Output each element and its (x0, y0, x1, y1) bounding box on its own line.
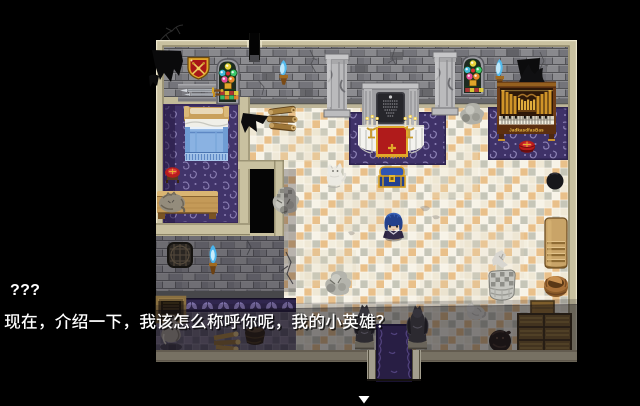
svg-text:???: ??? (10, 282, 40, 299)
svg-text:JadkasdfasBas: JadkasdfasBas (509, 128, 544, 133)
